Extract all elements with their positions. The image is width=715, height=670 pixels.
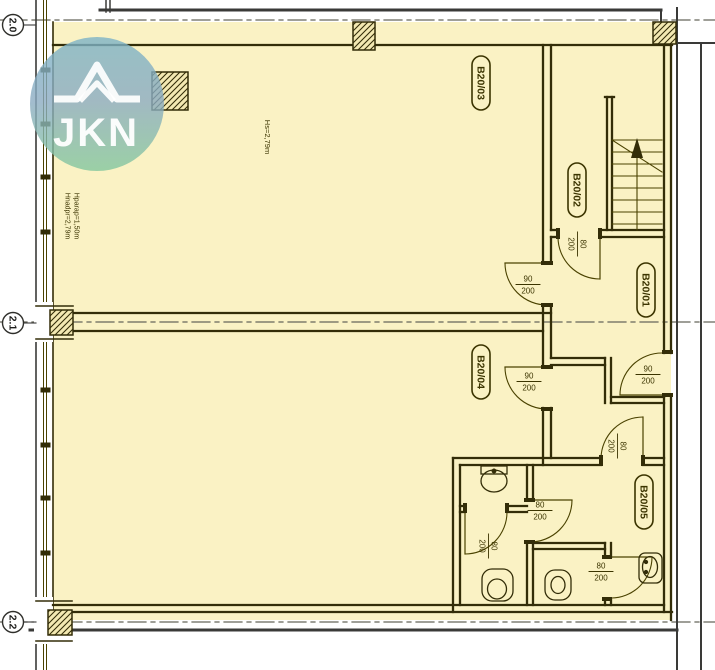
- door-jamb: [602, 597, 612, 601]
- door-height-value: 200: [478, 539, 487, 553]
- door-height-value: 200: [522, 384, 536, 393]
- height-annotation: Hparap=1,50m: [73, 193, 80, 240]
- door-width-value: 80: [579, 240, 588, 249]
- door-jamb: [662, 350, 673, 354]
- door-width-value: 80: [597, 562, 606, 571]
- door-width-value: 90: [644, 365, 653, 374]
- room-number: B20/01: [639, 273, 651, 307]
- column: [48, 610, 72, 635]
- grid-marker-label: 2.2: [6, 615, 18, 630]
- door-jamb: [541, 261, 553, 265]
- door-jamb: [556, 228, 560, 239]
- column: [653, 22, 676, 44]
- column: [353, 22, 375, 50]
- room-number: B20/05: [637, 485, 649, 519]
- door-jamb: [524, 540, 535, 544]
- door-jamb: [541, 407, 553, 411]
- room-number: B20/03: [474, 66, 486, 100]
- window-mullion: [41, 175, 51, 180]
- door-jamb: [541, 303, 553, 307]
- door-height-value: 200: [567, 237, 576, 251]
- height-annotation: Hnadpr=2,79m: [64, 193, 71, 240]
- sink-tap: [645, 561, 648, 564]
- window-mullion: [41, 443, 51, 448]
- door-jamb: [662, 393, 673, 397]
- window-mullion: [41, 230, 51, 235]
- grid-marker: 2.0: [3, 15, 37, 36]
- door-jamb: [602, 555, 612, 559]
- door-height-value: 200: [607, 439, 616, 453]
- sink-tap: [645, 571, 648, 574]
- door-jamb: [524, 498, 535, 502]
- floor-plan-drawing: 9020090200902008020080200802008020080200…: [0, 0, 715, 670]
- column: [50, 310, 73, 335]
- door-jamb: [541, 365, 553, 369]
- door-jamb: [598, 228, 602, 239]
- door-height-value: 200: [521, 287, 535, 296]
- height-annotation: Hs=2,79m: [263, 120, 272, 154]
- window-mullion: [41, 551, 51, 556]
- floor-plan-page: 9020090200902008020080200802008020080200…: [0, 0, 715, 670]
- door-height-value: 200: [641, 377, 655, 386]
- window-mullion: [41, 496, 51, 501]
- door-jamb: [599, 455, 603, 466]
- watermark-text: JKN: [53, 111, 139, 155]
- window-mullion: [41, 388, 51, 393]
- sink-tap: [492, 469, 496, 473]
- grid-marker-label: 2.0: [6, 18, 18, 33]
- door-jamb: [463, 503, 467, 513]
- door-jamb: [641, 455, 645, 466]
- room-number: B20/04: [474, 355, 486, 389]
- door-width-value: 90: [525, 372, 534, 381]
- room-number: B20/02: [570, 173, 582, 207]
- door-width-value: 80: [536, 501, 545, 510]
- door-jamb: [505, 503, 509, 513]
- door-width-value: 80: [619, 442, 628, 451]
- grid-marker-label: 2.1: [6, 316, 18, 331]
- grid-marker: 2.1: [3, 313, 37, 334]
- door-height-value: 200: [594, 574, 608, 583]
- door-height-value: 200: [533, 513, 547, 522]
- door-width-value: 80: [490, 542, 499, 551]
- jkn-watermark-logo: JKN: [30, 37, 164, 171]
- door-width-value: 90: [524, 275, 533, 284]
